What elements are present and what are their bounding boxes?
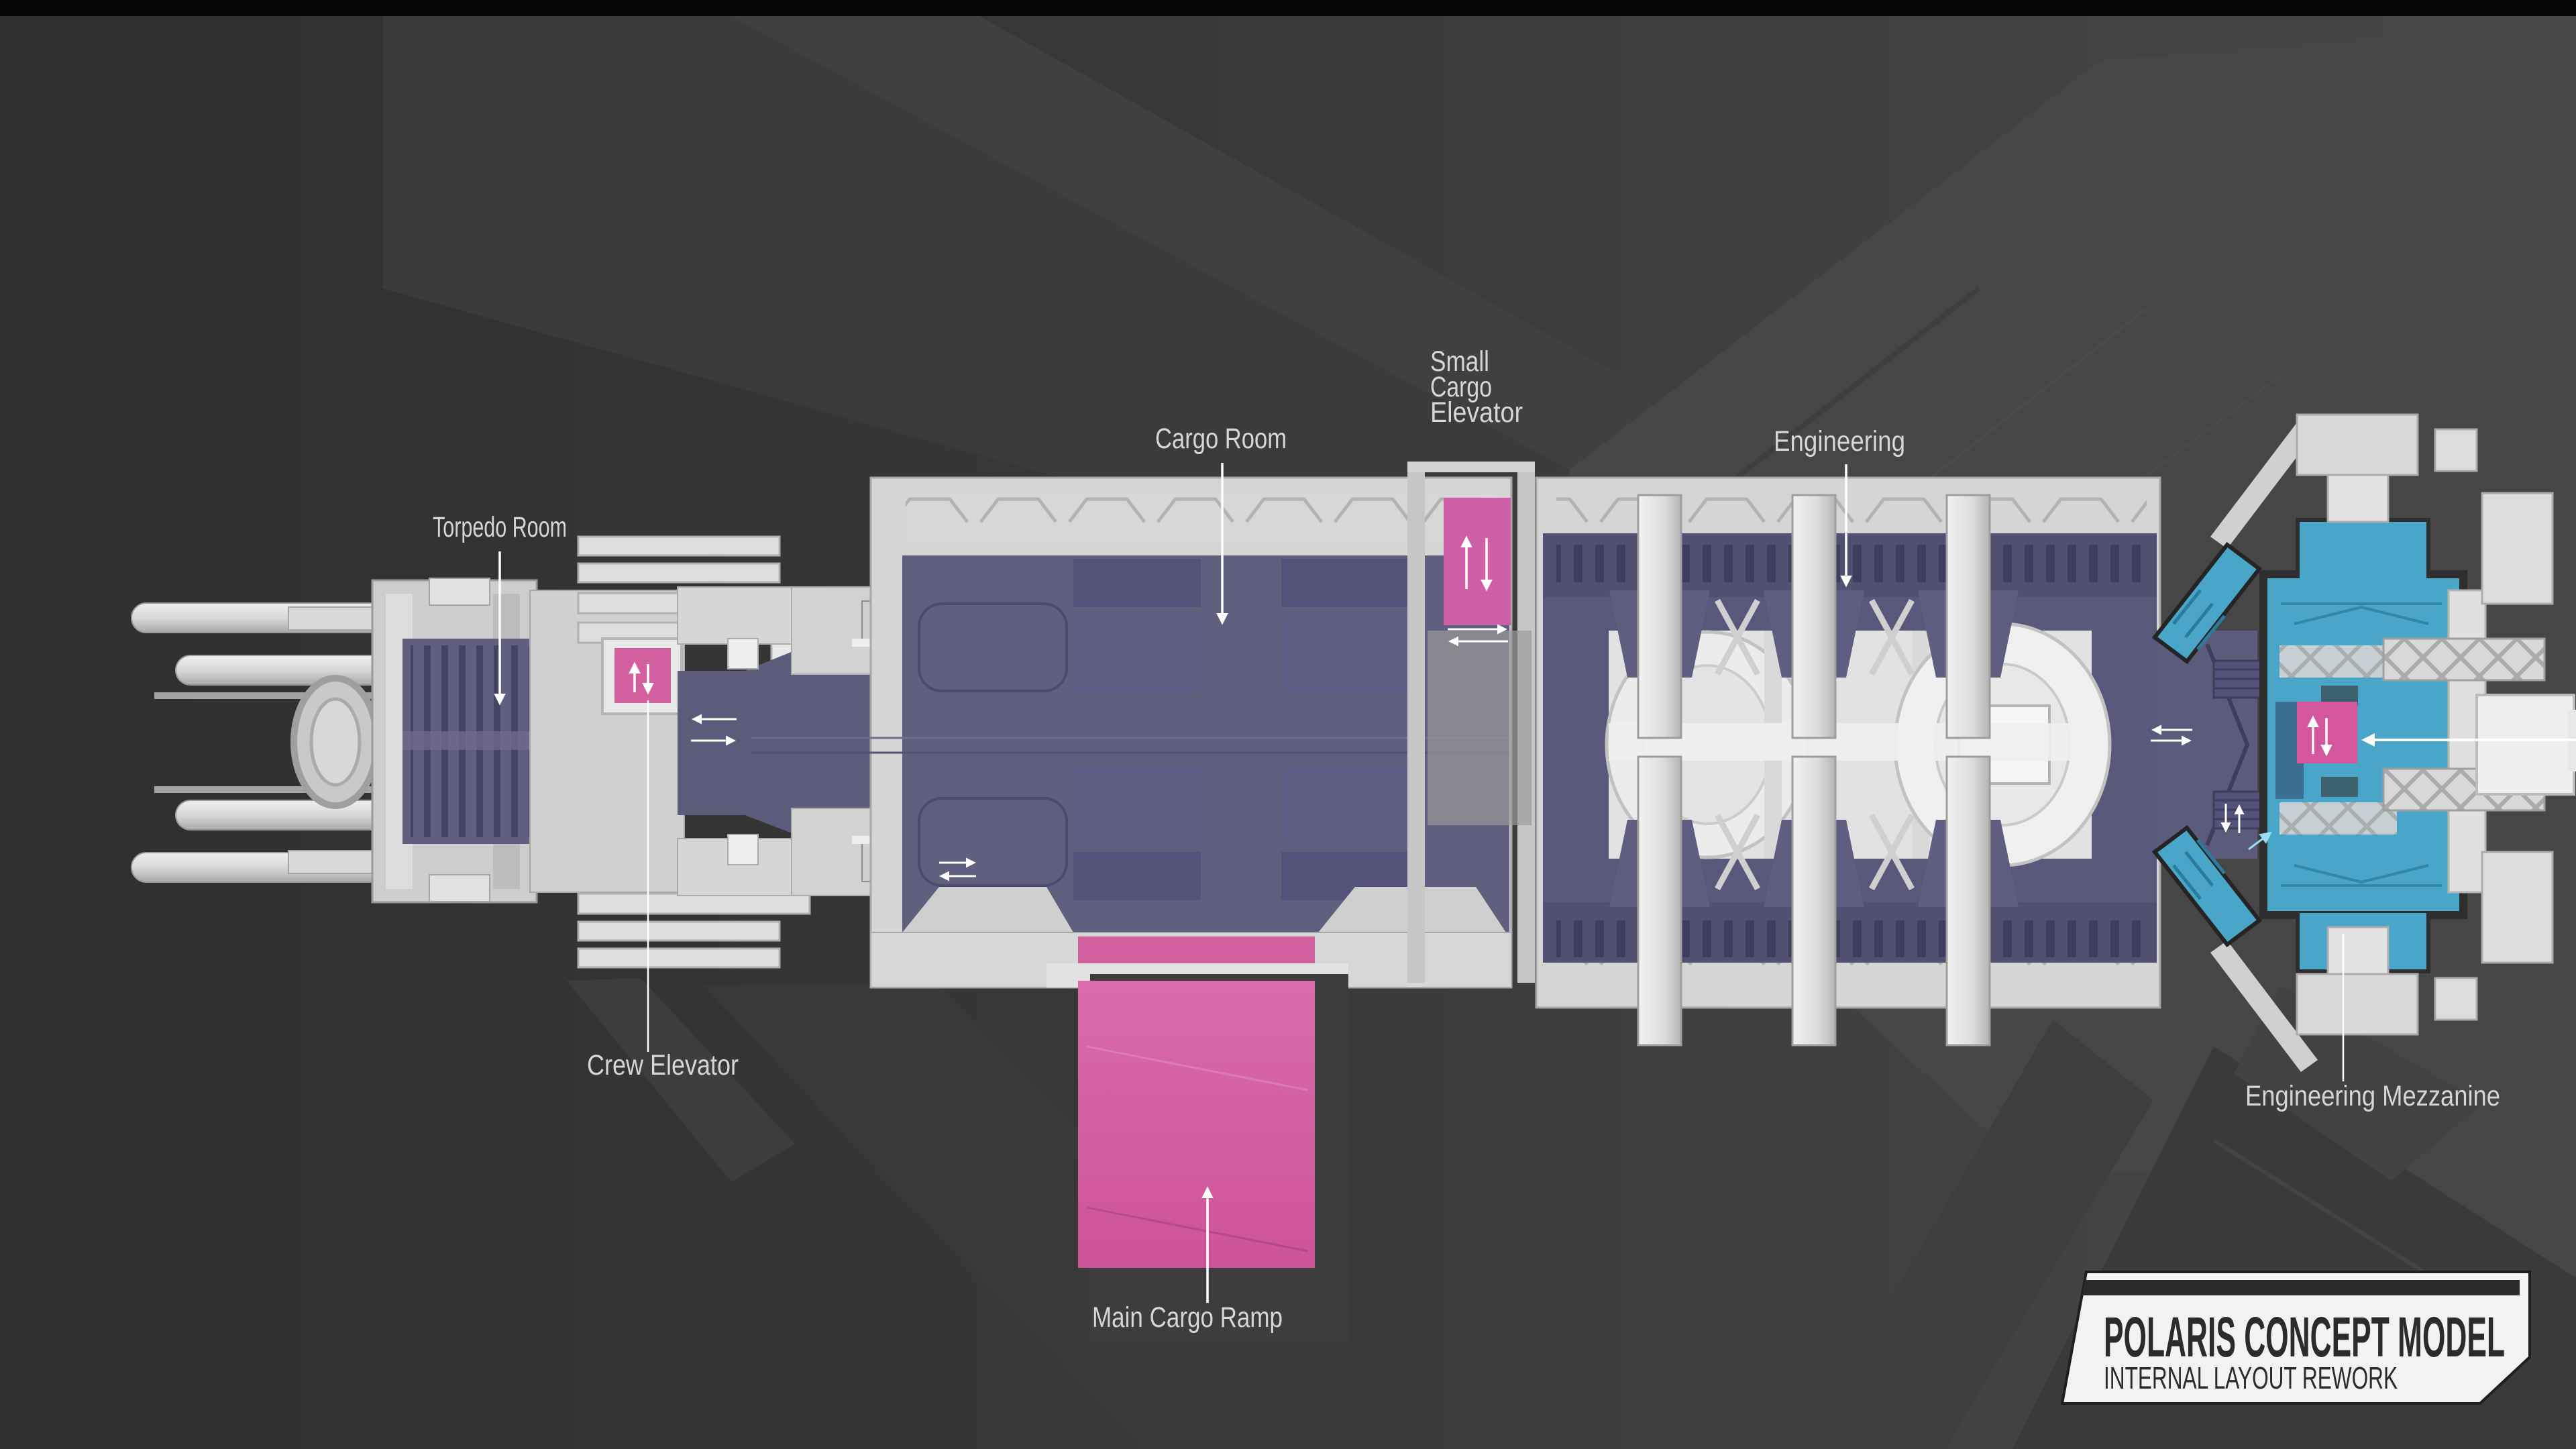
small-cargo-elevator-highlight: [1444, 498, 1511, 625]
top-letterbox-bar: [0, 0, 2576, 16]
engineering-mezzanine-label: Engineering Mezzanine: [2245, 1080, 2500, 1112]
small-cargo-elevator-label-line3: Elevator: [1430, 396, 1523, 429]
rear-corridor: [2157, 631, 2261, 859]
crew-elevator: [602, 639, 682, 714]
engineering: [1536, 478, 2160, 1045]
main-cargo-ramp-label: Main Cargo Ramp: [1092, 1301, 1283, 1334]
title-plate-subtitle: INTERNAL LAYOUT REWORK: [2104, 1360, 2398, 1395]
main-cargo-ramp-highlight: [1078, 981, 1315, 1268]
polaris-layout-diagram: Torpedo Room Crew Elevator Cargo Room Sm…: [0, 0, 2576, 1449]
main-cargo-ramp: [1078, 974, 1348, 1342]
crew-elevator-label: Crew Elevator: [587, 1049, 739, 1081]
title-plate-title: POLARIS CONCEPT MODEL: [2104, 1305, 2505, 1368]
cargo-bay-door-highlight: [1078, 936, 1315, 963]
title-plate: POLARIS CONCEPT MODEL INTERNAL LAYOUT RE…: [2062, 1272, 2530, 1403]
engineering-label: Engineering: [1774, 425, 1905, 458]
title-plate-stripe: [2082, 1280, 2520, 1295]
torpedo-room-label: Torpedo Room: [433, 511, 567, 543]
cargo-room-label: Cargo Room: [1155, 423, 1287, 455]
crew-elevator-highlight: [614, 648, 671, 703]
